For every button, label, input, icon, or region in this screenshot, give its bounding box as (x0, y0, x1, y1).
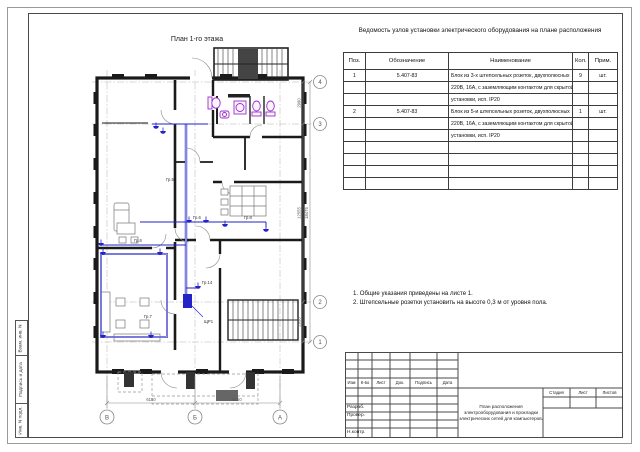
note-line: 1. Общие указания приведены на листе 1. (353, 289, 548, 298)
svg-text:Б: Б (193, 415, 197, 421)
tb-header-izm: Изм (345, 378, 358, 388)
tb-row-razrab: Разраб. (347, 404, 377, 412)
plan-title: План 1-го этажа (171, 36, 223, 43)
col-header-name: Наименование (449, 53, 573, 70)
spec-row-2-line-1: 2 5.407-83 Блок из 5-и штепсельных розет… (344, 106, 618, 118)
tb-header-podpis: Подпись (410, 378, 437, 388)
general-notes: 1. Общие указания приведены на листе 1. … (353, 289, 548, 307)
spec-row-2-line-3: установки, исп. IP20 (344, 130, 618, 142)
col-header-designation: Обозначение (366, 53, 449, 70)
tb-header-dok: Док. (390, 378, 410, 388)
spec-empty-row (344, 166, 618, 178)
group-label: Гр.5 (166, 177, 175, 182)
bathroom-fixtures (208, 97, 275, 118)
group-label: Гр.8 (244, 215, 253, 220)
spec-row-1-line-2: 220В, 16А, с заземляющим контактом для с… (344, 82, 618, 94)
group-label: Гр.7 (144, 314, 153, 319)
dimension-texts: 2990 12555 18475 2930 6150 6150 (146, 98, 309, 402)
tb-header-sheets: Листов (596, 388, 623, 397)
tb-header-list: Лист (372, 378, 390, 388)
group-label: Гр.6 (193, 215, 202, 220)
drawing-sheet: Взам. инв. N Подпись и дата Инв. N подл.… (0, 0, 640, 452)
group-label: Гр.14 (202, 280, 213, 285)
tb-row-prover: Провер. (347, 412, 377, 420)
stairs-bottom (228, 300, 298, 340)
svg-text:18475: 18475 (304, 207, 309, 219)
spec-table-title: Ведомость узлов установки электрического… (343, 27, 617, 36)
group-label: Гр.6 (134, 238, 143, 243)
svg-text:12555: 12555 (297, 207, 302, 219)
col-header-pos: Поз. (344, 53, 366, 70)
dimension-lines (105, 80, 312, 408)
spec-header-row: Поз. Обозначение Наименование Кол. Прим. (344, 53, 618, 70)
group-label: ЩР1 (204, 319, 214, 324)
tb-header-sheet: Лист (570, 388, 596, 397)
floor-plan: План 1-го этажа (0, 0, 345, 452)
svg-text:6150: 6150 (232, 397, 242, 402)
col-header-note: Прим. (589, 53, 618, 70)
svg-text:6150: 6150 (146, 397, 156, 402)
spec-empty-row (344, 142, 618, 154)
tb-header-data: Дата (437, 378, 458, 388)
spec-row-2-line-2: 220В, 16А, с заземляющим контактом для с… (344, 118, 618, 130)
panel-shr1 (183, 294, 192, 308)
spec-empty-row (344, 178, 618, 190)
spec-row-1-line-3: установки, исп. IP20 (344, 94, 618, 106)
svg-text:2930: 2930 (297, 317, 302, 327)
note-line: 2. Штепсельные розетки установить на выс… (353, 298, 548, 307)
tb-row-nkontr: Н.контр. (347, 428, 377, 438)
svg-text:2990: 2990 (297, 98, 302, 108)
furniture (101, 186, 266, 341)
tb-header-kvo: К-во (358, 378, 372, 388)
tb-doc-title: План расположения электрооборудования и … (459, 389, 543, 437)
spec-table: Поз. Обозначение Наименование Кол. Прим.… (343, 52, 618, 190)
col-header-qty: Кол. (573, 53, 589, 70)
tb-header-stadia: Стадия (543, 388, 570, 397)
svg-text:В: В (105, 415, 109, 421)
title-block: Изм К-во Лист Док. Подпись Дата Разраб. … (345, 352, 623, 438)
svg-text:А: А (278, 415, 282, 421)
spec-row-1-line-1: 1 5.407-83 Блок из 3-х штепсельных розет… (344, 70, 618, 82)
spec-empty-row (344, 154, 618, 166)
